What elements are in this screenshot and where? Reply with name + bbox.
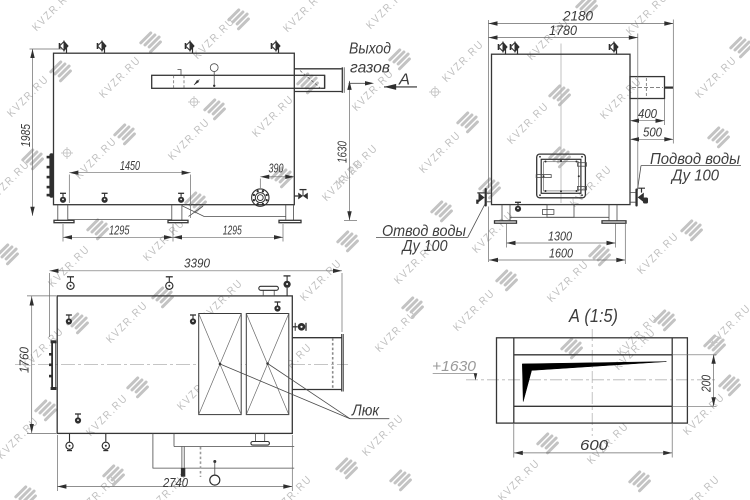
svg-text:1985: 1985 xyxy=(18,123,33,147)
svg-text:А (1:5): А (1:5) xyxy=(568,306,618,326)
svg-text:1780: 1780 xyxy=(549,22,577,38)
svg-text:1295: 1295 xyxy=(223,223,243,238)
svg-text:1295: 1295 xyxy=(109,223,130,238)
svg-text:500: 500 xyxy=(643,125,663,140)
svg-text:Выход: Выход xyxy=(349,41,391,58)
svg-text:Люк: Люк xyxy=(351,403,380,420)
svg-text:Ду 100: Ду 100 xyxy=(670,168,719,185)
svg-text:3390: 3390 xyxy=(184,256,211,271)
svg-text:газов: газов xyxy=(350,60,390,77)
svg-text:1300: 1300 xyxy=(548,229,573,244)
svg-text:2740: 2740 xyxy=(162,475,189,490)
svg-text:400: 400 xyxy=(638,106,658,121)
svg-text:+1630: +1630 xyxy=(432,358,477,375)
svg-text:200: 200 xyxy=(699,374,714,392)
svg-text:390: 390 xyxy=(269,161,285,176)
svg-text:1450: 1450 xyxy=(120,158,141,173)
svg-text:1630: 1630 xyxy=(335,140,350,163)
svg-text:600: 600 xyxy=(580,437,609,454)
svg-text:А: А xyxy=(398,72,410,89)
svg-text:Ду 100: Ду 100 xyxy=(401,238,448,255)
svg-text:1600: 1600 xyxy=(549,246,574,261)
svg-text:1760: 1760 xyxy=(17,346,32,373)
